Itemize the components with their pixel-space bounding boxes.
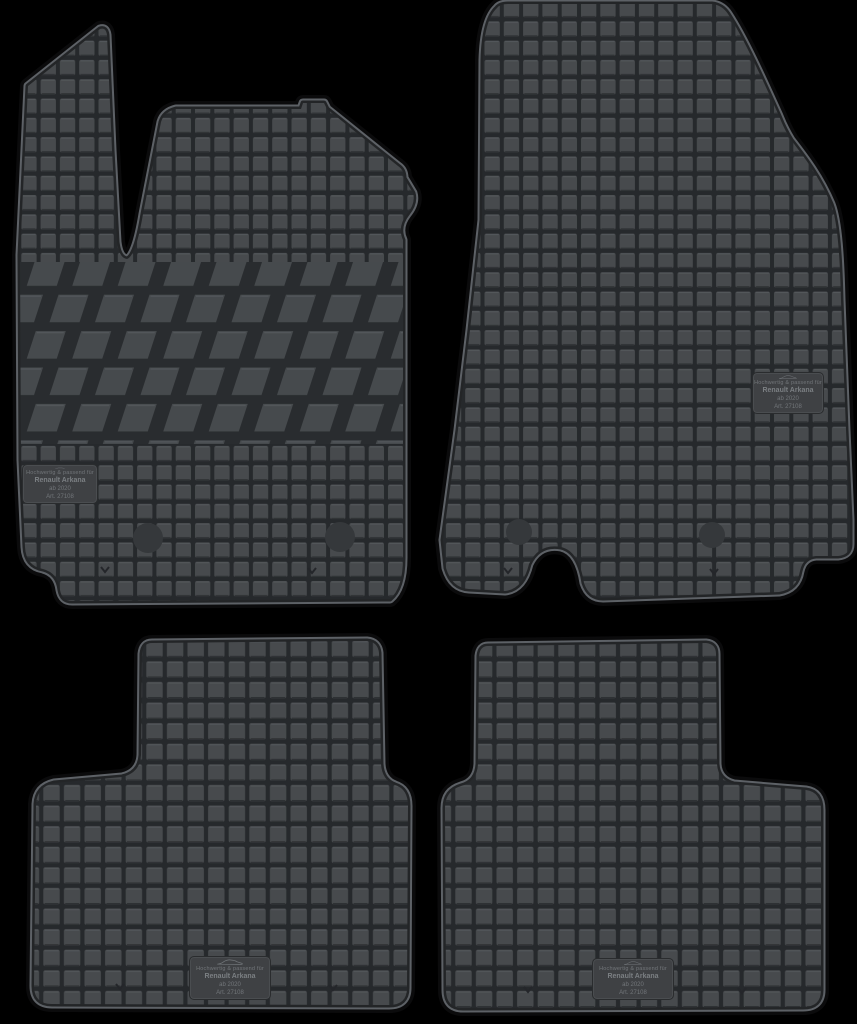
label-article-number: Art. 27108 — [774, 404, 802, 412]
label-fitment-text: Hochwertig & passend für — [196, 966, 264, 973]
label-fitment-text: Hochwertig & passend für — [26, 470, 94, 477]
fixation-point — [133, 523, 163, 553]
rear-right-mat-label: Hochwertig & passend für Renault Arkana … — [592, 958, 674, 1000]
floor-mats-illustration — [0, 0, 857, 1024]
label-vehicle-name: Renault Arkana — [762, 387, 813, 396]
label-article-number: Art. 27108 — [619, 990, 647, 998]
label-model-year: ab 2020 — [622, 982, 644, 990]
label-model-year: ab 2020 — [219, 982, 241, 990]
car-silhouette-icon — [771, 375, 805, 379]
label-fitment-text: Hochwertig & passend für — [754, 380, 822, 387]
rear-left-mat — [34, 641, 408, 1005]
label-article-number: Art. 27108 — [216, 990, 244, 998]
front-left-mat — [16, 29, 414, 601]
car-silhouette-icon — [616, 961, 650, 965]
label-article-number: Art. 27108 — [46, 494, 74, 502]
car-silhouette-icon — [213, 959, 247, 965]
label-vehicle-name: Renault Arkana — [607, 973, 658, 982]
rear-left-mat-label: Hochwertig & passend für Renault Arkana … — [189, 956, 271, 1000]
fixation-point — [325, 522, 355, 552]
front-left-mat-label: Hochwertig & passend für Renault Arkana … — [22, 464, 98, 504]
fixation-point — [699, 522, 725, 548]
label-fitment-text: Hochwertig & passend für — [599, 966, 667, 973]
car-silhouette-icon — [43, 467, 77, 469]
front-right-mat-label: Hochwertig & passend für Renault Arkana … — [752, 372, 824, 414]
rear-right-mat — [445, 643, 821, 1008]
label-model-year: ab 2020 — [49, 486, 71, 494]
front-right-mat — [443, 4, 850, 598]
label-vehicle-name: Renault Arkana — [204, 973, 255, 982]
diagonal-tread-band — [16, 262, 414, 444]
label-vehicle-name: Renault Arkana — [34, 477, 85, 486]
fixation-point — [506, 519, 532, 545]
label-model-year: ab 2020 — [777, 396, 799, 404]
product-photo-floor-mat-set: Hochwertig & passend für Renault Arkana … — [0, 0, 857, 1024]
